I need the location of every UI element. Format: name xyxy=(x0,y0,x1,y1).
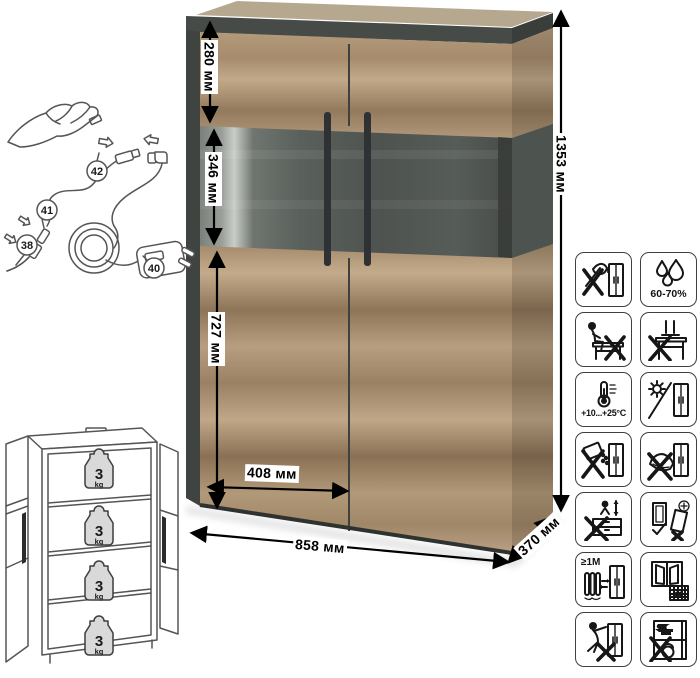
open-window-icon: 21 xyxy=(646,558,692,602)
temperature-label: +10...+25°C xyxy=(581,408,626,419)
care-icon-no-direct-sunlight xyxy=(640,372,697,427)
care-icon-temperature: +10...+25°C xyxy=(575,372,632,427)
dim-bottom-section-height: 727 мм xyxy=(208,312,225,366)
dim-top-section-height: 280 мм xyxy=(201,40,218,94)
thermometer-icon xyxy=(581,380,627,408)
left-door-open xyxy=(6,436,28,662)
care-icon-no-liquids xyxy=(575,432,632,487)
svg-text:kg: kg xyxy=(95,592,104,601)
no-jumping-icon xyxy=(581,499,627,541)
hand-icon xyxy=(8,102,102,147)
door-adjustment-icon xyxy=(646,499,692,541)
care-icon-no-climbing xyxy=(575,612,632,667)
no-liquids-icon xyxy=(581,439,627,481)
heat-distance-label: ≥1M xyxy=(581,557,600,568)
cable-plug xyxy=(115,149,140,164)
no-heavy-items-icon xyxy=(646,618,692,662)
part-label-38: 38 xyxy=(21,240,33,252)
part-label-40: 40 xyxy=(148,263,160,275)
calendar-day-label: 21 xyxy=(675,592,683,599)
water-drops-icon xyxy=(646,259,692,289)
no-climbing-icon xyxy=(581,618,627,662)
dim-glass-section-height: 346 мм xyxy=(205,152,222,206)
dim-door-width: 408 мм xyxy=(245,464,299,483)
no-kicking-icon xyxy=(646,439,692,481)
part-label-41: 41 xyxy=(41,205,53,217)
no-standing-icon xyxy=(646,319,692,361)
left-door-handle xyxy=(324,112,331,266)
care-icon-humidity: 60-70% xyxy=(640,252,697,307)
care-icon-no-kicking xyxy=(640,432,697,487)
care-icon-no-sharp-tools xyxy=(575,252,632,307)
care-icon-grid: 60-70% xyxy=(575,252,697,667)
care-icon-door-adjustment xyxy=(640,492,697,547)
shelf-load-diagram: 3 kg 3 kg 3 kg 3 kg xyxy=(2,418,187,678)
dim-total-height: 1353 мм xyxy=(553,133,570,195)
product-sheet: 280 мм 346 мм 727 мм 408 мм 858 мм 370 м… xyxy=(0,0,700,678)
right-door-handle xyxy=(364,112,371,266)
right-door-open xyxy=(160,444,178,634)
glass-band-side xyxy=(512,124,553,258)
care-icon-ventilation: 21 xyxy=(640,552,697,607)
care-icon-no-heavy-items xyxy=(640,612,697,667)
care-icon-no-standing xyxy=(640,312,697,367)
led-strip xyxy=(7,256,30,271)
no-sharp-tools-icon xyxy=(581,259,627,301)
no-sitting-icon xyxy=(581,319,627,361)
cable-coil xyxy=(69,223,138,273)
svg-text:kg: kg xyxy=(95,647,104,656)
led-wiring-diagram: 42 41 38 40 xyxy=(2,98,197,293)
care-icon-no-sitting xyxy=(575,312,632,367)
care-icon-no-jumping xyxy=(575,492,632,547)
care-icon-heat-distance: ≥1M xyxy=(575,552,632,607)
no-sunlight-icon xyxy=(646,379,692,421)
part-label-42: 42 xyxy=(91,166,103,178)
humidity-label: 60-70% xyxy=(650,289,686,300)
glass-display-band xyxy=(200,126,512,258)
svg-text:kg: kg xyxy=(95,537,104,546)
glass-right-frame xyxy=(498,137,512,258)
svg-text:kg: kg xyxy=(95,480,104,489)
anvil-icon xyxy=(655,624,673,635)
